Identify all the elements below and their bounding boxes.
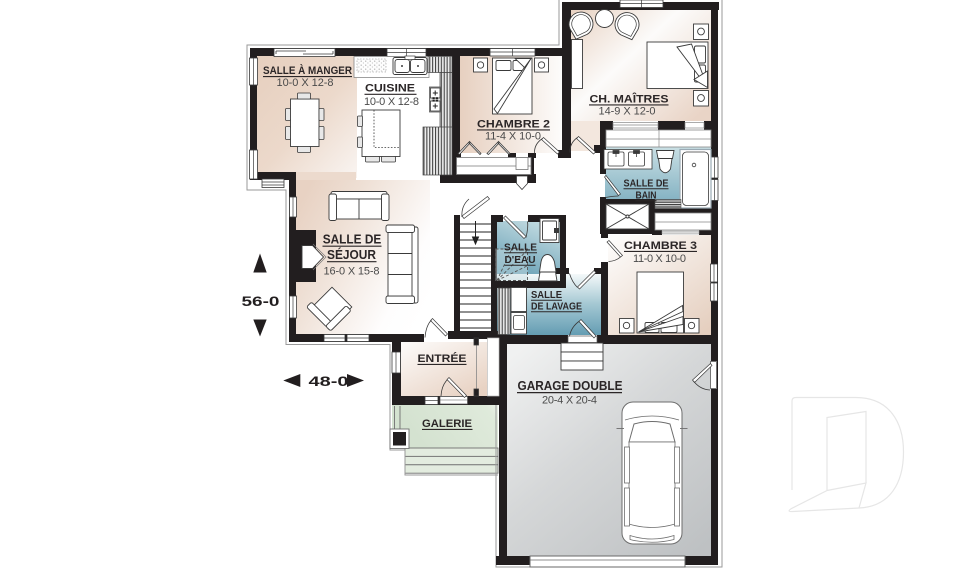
svg-text:CUISINE: CUISINE <box>365 83 415 95</box>
svg-text:BAIN: BAIN <box>636 190 657 201</box>
svg-text:48-0: 48-0 <box>309 373 349 389</box>
svg-text:SÉJOUR: SÉJOUR <box>327 247 376 262</box>
svg-text:10-0 X 12-8: 10-0 X 12-8 <box>277 77 334 89</box>
svg-text:20-4 X 20-4: 20-4 X 20-4 <box>542 395 597 407</box>
svg-text:SALLE: SALLE <box>531 290 562 301</box>
svg-text:16-0 X 15-8: 16-0 X 15-8 <box>324 266 380 278</box>
svg-text:ENTRÉE: ENTRÉE <box>418 352 467 365</box>
svg-text:11-0 X 10-0: 11-0 X 10-0 <box>633 253 686 265</box>
svg-text:CHAMBRE 3: CHAMBRE 3 <box>624 240 697 252</box>
svg-text:SALLE DE: SALLE DE <box>624 178 669 189</box>
svg-text:SALLE À MANGER: SALLE À MANGER <box>263 64 352 77</box>
svg-text:DE LAVAGE: DE LAVAGE <box>531 301 582 312</box>
svg-text:56-0: 56-0 <box>242 293 280 309</box>
svg-text:14-9 X 12-0: 14-9 X 12-0 <box>599 105 656 117</box>
svg-text:D'EAU: D'EAU <box>505 255 536 266</box>
svg-text:GALERIE: GALERIE <box>422 418 472 430</box>
svg-text:11-4 X 10-0: 11-4 X 10-0 <box>485 130 541 142</box>
svg-text:GARAGE DOUBLE: GARAGE DOUBLE <box>518 378 623 393</box>
svg-text:10-0 X 12-8: 10-0 X 12-8 <box>364 96 419 108</box>
svg-text:SALLE DE: SALLE DE <box>323 233 382 247</box>
svg-text:CHAMBRE 2: CHAMBRE 2 <box>477 118 550 130</box>
svg-text:CH. MAÎTRES: CH. MAÎTRES <box>590 92 669 105</box>
svg-text:SALLE: SALLE <box>504 242 537 253</box>
